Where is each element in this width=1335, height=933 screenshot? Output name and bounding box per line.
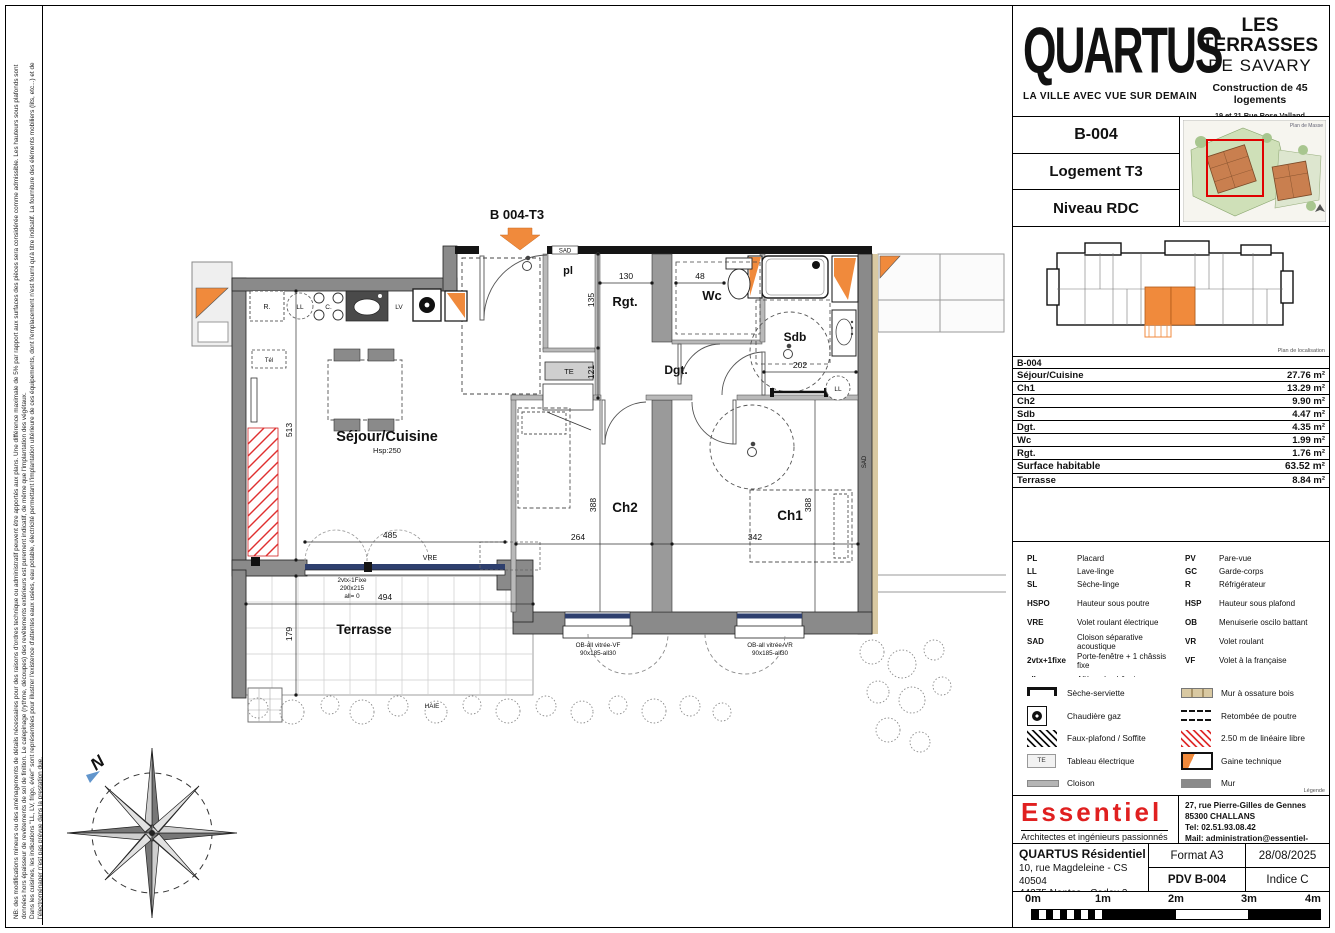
legend-row: Gaine technique: [1181, 751, 1327, 771]
legend-row: TETableau électrique: [1027, 751, 1175, 771]
svg-text:179: 179: [284, 627, 294, 641]
room-sdb: Sdb: [784, 330, 807, 344]
hob-label: C.: [325, 304, 332, 311]
area-row: Sdb4.47 m²: [1013, 408, 1329, 421]
symbols-left-column: Sèche-serviette Chaudière gaz Faux-plafo…: [1027, 683, 1175, 796]
fridge-label: R.: [264, 304, 271, 311]
abbrev-row: PLPlacard: [1027, 552, 1175, 565]
abbrev-left-column: PLPlacard LLLave-linge SLSèche-linge HSP…: [1027, 552, 1175, 677]
area-total-row: Surface habitable63.52 m²: [1013, 460, 1329, 474]
legend-row: Mur à ossature bois: [1181, 683, 1327, 703]
abbrev-row: SADCloison séparative acoustique: [1027, 635, 1175, 648]
legend-row: Cloison: [1027, 773, 1175, 793]
localisation-caption: Plan de localisation: [1278, 348, 1325, 354]
abbrev-row: 2vtx+1fixePorte-fenêtre + 1 châssis fixe: [1027, 654, 1175, 667]
svg-text:388: 388: [803, 498, 813, 512]
svg-text:513: 513: [284, 423, 294, 437]
area-row: Ch29.90 m²: [1013, 395, 1329, 408]
svg-text:494: 494: [378, 592, 392, 602]
seche-serviette-icon: [1027, 687, 1057, 699]
quartus-logo-text: QUARTUS: [1023, 20, 1191, 85]
north-label: N: [87, 751, 109, 774]
cloison-icon: [1027, 780, 1059, 787]
essentiel-tagline: Architectes et ingénieurs passionnés: [1021, 830, 1168, 842]
area-row: Séjour/Cuisine27.76 m²: [1013, 369, 1329, 382]
washer-sdb-label: LL: [834, 386, 842, 393]
indice-cell: Indice C: [1246, 868, 1329, 891]
unit-pointer-arrow: [500, 228, 540, 250]
architect-tel: Tel: 02.51.93.08.42: [1185, 822, 1329, 833]
svg-text:485: 485: [383, 530, 397, 540]
svg-text:90x185-all30: 90x185-all30: [580, 650, 617, 657]
abbrev-row: GCGarde-corps: [1185, 565, 1327, 578]
abbrev-row: VRVolet roulant: [1185, 635, 1327, 648]
abbrev-right-column: PVPare-vue GCGarde-corps RRéfrigérateur …: [1185, 552, 1327, 667]
area-row: Wc1.99 m²: [1013, 434, 1329, 447]
client-address: 10, rue Magdeleine - CS 40504 44275 Nant…: [1019, 863, 1148, 892]
dishwasher-label: LV: [395, 304, 403, 311]
architect-mail: Mail: administration@essentiel-archi.fr: [1185, 833, 1329, 844]
symbols-legend: Sèche-serviette Chaudière gaz Faux-plafo…: [1013, 677, 1329, 796]
client-block: QUARTUS Résidentiel 10, rue Magdeleine -…: [1013, 844, 1149, 891]
abbreviation-legend: PLPlacard LLLave-linge SLSèche-linge HSP…: [1013, 542, 1329, 677]
gaine-technique-icon: [1181, 752, 1213, 770]
client-address1: 10, rue Magdeleine - CS 40504: [1019, 863, 1148, 888]
quartus-logo: QUARTUS LA VILLE AVEC VUE SUR DEMAIN: [1013, 6, 1191, 116]
client-name: QUARTUS Résidentiel: [1019, 847, 1148, 861]
legend-row: Chaudière gaz: [1027, 706, 1175, 726]
unit-id-cells: B-004 Logement T3 Niveau RDC: [1013, 117, 1180, 226]
abbrev-row: OBMenuiserie oscilo battant: [1185, 616, 1327, 629]
area-row: Dgt.4.35 m²: [1013, 421, 1329, 434]
svg-text:48: 48: [695, 271, 705, 281]
chaudiere-gaz-icon: [1027, 706, 1047, 726]
room-pl: pl: [563, 265, 573, 277]
svg-text:90x185-all30: 90x185-all30: [752, 650, 789, 657]
svg-text:VRE: VRE: [423, 555, 438, 562]
architect-address2: 85300 CHALLANS: [1185, 811, 1329, 822]
building-localisation-thumbnail: [1045, 231, 1295, 349]
lineaire-libre-icon: [1181, 730, 1211, 747]
haie-label: HAIE: [425, 703, 440, 710]
abbrev-row: HSPHauteur sous plafond: [1185, 597, 1327, 610]
tableau-electrique-icon: TE: [1027, 754, 1056, 768]
drawing-sheet: NB: des modifications mineurs ou des amé…: [0, 0, 1335, 933]
localisation-section: Plan de localisation: [1013, 227, 1329, 357]
architect-address1: 27, rue Pierre-Gilles de Gennes: [1185, 800, 1329, 811]
essentiel-logo: Essentiel Architectes et ingénieurs pass…: [1013, 796, 1179, 843]
abbrev-row: LLLave-linge: [1027, 565, 1175, 578]
scale-bar-section: 0m 1m 2m 3m 4m: [1013, 892, 1329, 927]
svg-text:121: 121: [586, 365, 596, 379]
essentiel-logo-text: Essentiel: [1021, 798, 1178, 827]
room-sejour-hsp: Hsp:250: [373, 446, 401, 455]
abbrev-row: RRéfrigérateur: [1185, 578, 1327, 591]
svg-text:OB-all vitrée-VR: OB-all vitrée-VR: [747, 642, 793, 649]
room-sejour: Séjour/Cuisine: [336, 429, 438, 445]
scale-label-2: 2m: [1168, 893, 1184, 905]
abbrev-row: HSPOHauteur sous poutre: [1027, 597, 1175, 610]
svg-text:264: 264: [571, 532, 585, 542]
plan-title: B 004-T3: [490, 207, 544, 222]
retombee-poutre-icon: [1181, 710, 1211, 721]
partitions: TE: [511, 254, 858, 612]
svg-text:OB-all vitrée-VF: OB-all vitrée-VF: [576, 642, 621, 649]
legend-row: Faux-plafond / Soffite: [1027, 728, 1175, 748]
title-block: QUARTUS Résidentiel 10, rue Magdeleine -…: [1013, 844, 1329, 892]
format-cell: Format A3: [1149, 844, 1246, 867]
pdv-cell: PDV B-004: [1149, 868, 1246, 891]
mur-icon: [1181, 779, 1211, 788]
room-terrasse: Terrasse: [336, 622, 392, 637]
unit-type: Logement T3: [1013, 154, 1179, 191]
room-ch1: Ch1: [777, 508, 803, 523]
scale-label-0: 0m: [1025, 893, 1041, 905]
abbrev-row: VREVolet roulant électrique: [1027, 616, 1175, 629]
unit-code: B-004: [1013, 117, 1179, 154]
abbrev-row: PVPare-vue: [1185, 552, 1327, 565]
unit-level: Niveau RDC: [1013, 190, 1179, 226]
room-dgt: Dgt.: [664, 363, 687, 377]
legend-row: Retombée de poutre: [1181, 706, 1327, 726]
svg-text:342: 342: [748, 532, 762, 542]
area-terrasse-row: Terrasse8.84 m²: [1013, 474, 1329, 488]
legend-row: Sèche-serviette: [1027, 683, 1175, 703]
title-grid: Format A3 28/08/2025 PDV B-004 Indice C: [1149, 844, 1329, 891]
svg-text:130: 130: [619, 271, 633, 281]
washer-kitchen-label: LL: [296, 304, 304, 311]
scale-bar: [1031, 909, 1321, 920]
floor-plan: SAD SAD: [0, 0, 1012, 933]
panel-spacer: [1013, 488, 1329, 542]
compass-rose: N: [67, 748, 237, 918]
area-row: Rgt.1.76 m²: [1013, 447, 1329, 460]
title-panel: QUARTUS LA VILLE AVEC VUE SUR DEMAIN LES…: [1012, 6, 1329, 927]
sad-label-top: SAD: [559, 249, 572, 255]
abbrev-row: SLSèche-linge: [1027, 578, 1175, 591]
legend-caption: Légende: [1304, 788, 1325, 794]
scale-label-3: 3m: [1241, 893, 1257, 905]
areas-table-header: B-004: [1017, 358, 1325, 368]
faux-plafond-icon: [1027, 730, 1057, 747]
area-row: Ch113.29 m²: [1013, 382, 1329, 395]
scale-label-4: 4m: [1305, 893, 1321, 905]
svg-text:388: 388: [588, 498, 598, 512]
sad-label-right: SAD: [862, 455, 868, 468]
date-cell: 28/08/2025: [1246, 844, 1329, 867]
abbrev-row: VFVolet à la française: [1185, 654, 1327, 667]
unit-identification: B-004 Logement T3 Niveau RDC: [1013, 117, 1329, 227]
tel-label: Tél: [265, 358, 273, 364]
legend-row: 2.50 m de linéaire libre: [1181, 728, 1327, 748]
svg-text:290x215: 290x215: [340, 585, 365, 592]
site-plan-thumbnail: Plan de Masse: [1180, 117, 1329, 226]
svg-text:2vtx-1Fixe: 2vtx-1Fixe: [337, 577, 367, 584]
room-rgt: Rgt.: [612, 294, 637, 309]
scale-label-1: 1m: [1095, 893, 1111, 905]
architect-contact: 27, rue Pierre-Gilles de Gennes 85300 CH…: [1179, 796, 1329, 843]
svg-text:135: 135: [586, 293, 596, 307]
room-ch2: Ch2: [612, 500, 638, 515]
entry-zone: B 004-T3: [462, 207, 544, 394]
room-wc: Wc: [702, 288, 722, 303]
quartus-tagline: LA VILLE AVEC VUE SUR DEMAIN: [1023, 91, 1191, 102]
architect-block: Essentiel Architectes et ingénieurs pass…: [1013, 796, 1329, 844]
brand-header: QUARTUS LA VILLE AVEC VUE SUR DEMAIN LES…: [1013, 6, 1329, 117]
te-box-label: TE: [564, 367, 574, 376]
masse-caption: Plan de Masse: [1290, 123, 1323, 129]
symbols-right-column: Mur à ossature bois Retombée de poutre 2…: [1181, 683, 1327, 796]
areas-table: B-004 Séjour/Cuisine27.76 m² Ch113.29 m²…: [1013, 357, 1329, 488]
svg-text:202: 202: [793, 360, 807, 370]
svg-text:all= 0: all= 0: [344, 593, 360, 600]
mur-ossature-bois-icon: [1181, 688, 1213, 698]
